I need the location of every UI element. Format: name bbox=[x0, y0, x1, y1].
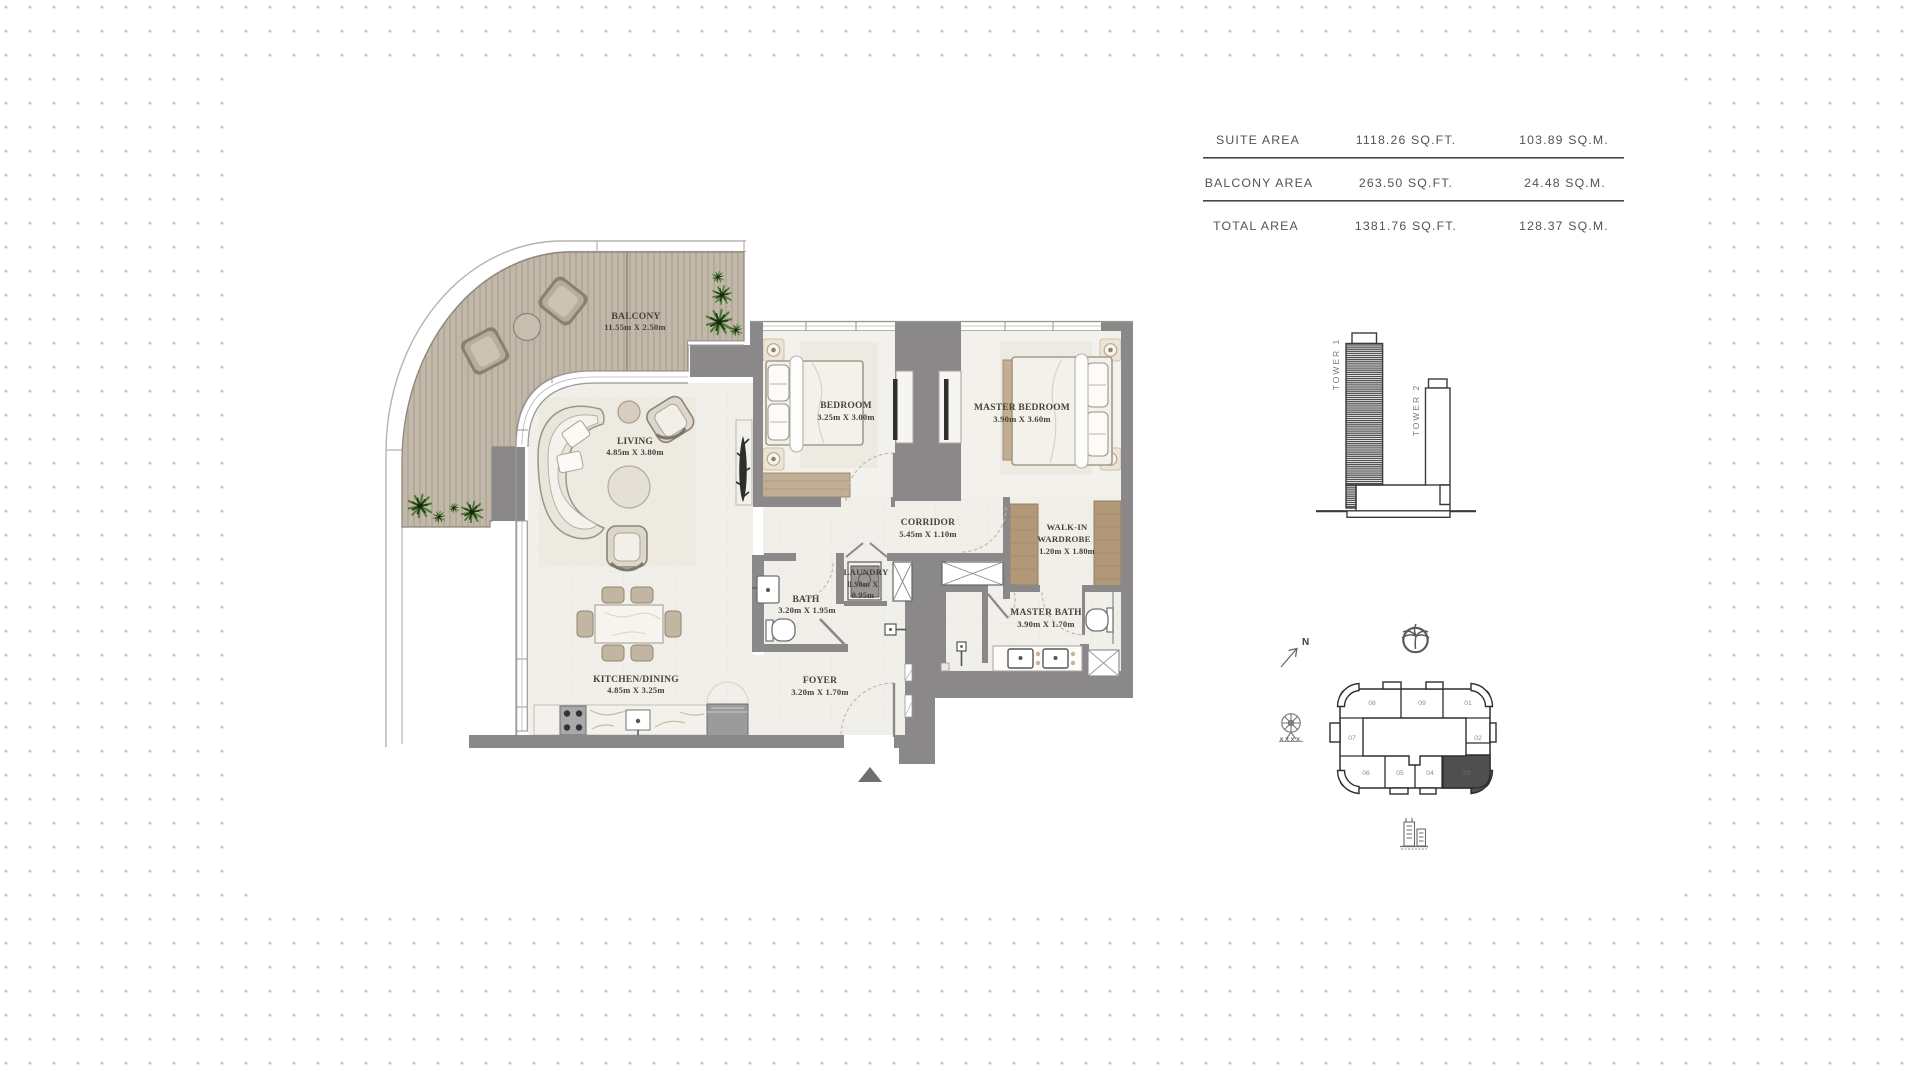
svg-text:WARDROBE: WARDROBE bbox=[1037, 534, 1090, 544]
svg-text:3.20m X 1.70m: 3.20m X 1.70m bbox=[791, 687, 849, 697]
svg-text:BEDROOM: BEDROOM bbox=[820, 401, 872, 411]
svg-text:06: 06 bbox=[1362, 770, 1370, 777]
svg-text:05: 05 bbox=[1396, 770, 1404, 777]
svg-text:KITCHEN/DINING: KITCHEN/DINING bbox=[593, 675, 679, 685]
svg-text:08: 08 bbox=[1368, 700, 1376, 707]
svg-text:LIVING: LIVING bbox=[617, 437, 653, 447]
svg-text:N: N bbox=[1302, 637, 1309, 648]
svg-text:MASTER BEDROOM: MASTER BEDROOM bbox=[974, 403, 1070, 413]
svg-text:4.85m X 3.25m: 4.85m X 3.25m bbox=[607, 685, 665, 695]
svg-text:1118.26 SQ.FT.: 1118.26 SQ.FT. bbox=[1356, 133, 1456, 147]
svg-text:TOWER 2: TOWER 2 bbox=[1411, 384, 1421, 437]
svg-text:128.37 SQ.M.: 128.37 SQ.M. bbox=[1519, 219, 1609, 233]
svg-text:BATH: BATH bbox=[792, 595, 819, 605]
svg-text:1381.76 SQ.FT.: 1381.76 SQ.FT. bbox=[1355, 219, 1457, 233]
svg-text:WALK-IN: WALK-IN bbox=[1047, 522, 1088, 532]
svg-text:CORRIDOR: CORRIDOR bbox=[901, 518, 955, 528]
svg-text:263.50 SQ.FT.: 263.50 SQ.FT. bbox=[1359, 176, 1453, 190]
svg-text:02: 02 bbox=[1474, 735, 1482, 742]
svg-text:LAUNDRY: LAUNDRY bbox=[843, 567, 889, 577]
svg-text:3.20m X 1.95m: 3.20m X 1.95m bbox=[778, 605, 836, 615]
svg-text:07: 07 bbox=[1348, 735, 1356, 742]
svg-text:103.89 SQ.M.: 103.89 SQ.M. bbox=[1519, 133, 1609, 147]
svg-text:24.48 SQ.M.: 24.48 SQ.M. bbox=[1524, 176, 1606, 190]
svg-text:SUITE AREA: SUITE AREA bbox=[1216, 133, 1300, 147]
svg-text:0.95m: 0.95m bbox=[852, 591, 874, 600]
svg-text:11.55m X 2.50m: 11.55m X 2.50m bbox=[604, 322, 666, 332]
svg-text:FOYER: FOYER bbox=[803, 676, 837, 686]
svg-text:BALCONY AREA: BALCONY AREA bbox=[1205, 176, 1314, 190]
svg-text:09: 09 bbox=[1418, 700, 1426, 707]
svg-text:5.45m X 1.10m: 5.45m X 1.10m bbox=[899, 529, 957, 539]
svg-text:1.20m X 1.80m: 1.20m X 1.80m bbox=[1039, 547, 1095, 556]
svg-text:3.25m X 3.00m: 3.25m X 3.00m bbox=[817, 412, 875, 422]
svg-text:03: 03 bbox=[1463, 770, 1471, 777]
svg-text:3.90m X 1.70m: 3.90m X 1.70m bbox=[1017, 619, 1075, 629]
svg-text:01: 01 bbox=[1464, 700, 1472, 707]
svg-text:BALCONY: BALCONY bbox=[612, 312, 661, 322]
svg-text:04: 04 bbox=[1426, 770, 1434, 777]
svg-text:TOTAL AREA: TOTAL AREA bbox=[1213, 219, 1299, 233]
svg-text:MASTER BATH: MASTER BATH bbox=[1010, 608, 1082, 618]
svg-text:4.85m X 3.80m: 4.85m X 3.80m bbox=[606, 447, 664, 457]
svg-text:0.90m X: 0.90m X bbox=[848, 580, 879, 589]
svg-text:3.90m X 3.60m: 3.90m X 3.60m bbox=[993, 414, 1051, 424]
svg-text:TOWER 1: TOWER 1 bbox=[1331, 338, 1341, 391]
